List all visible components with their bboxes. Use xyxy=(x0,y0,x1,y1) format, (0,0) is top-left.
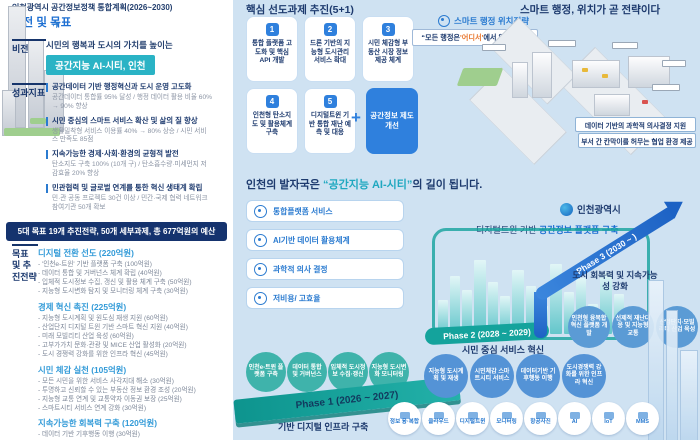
goal-item: 지능형 도시변화 탐지 및 모니터링 체계 구축 (30억원) xyxy=(38,287,196,296)
platform-icon xyxy=(254,205,267,218)
task-number-badge: 2 xyxy=(324,23,337,36)
vision-statement: 시민의 행복과 도시의 가치를 높이는 xyxy=(46,39,173,51)
marker-icon xyxy=(642,100,648,104)
tech-badge: 정보 융·복합 xyxy=(388,402,421,435)
kpi-title: 지속가능한 경제·사회·환경의 균형적 발전 xyxy=(46,150,212,159)
goal-item: '인천e-트윈' 기반 플랫폼 구축 (100억원) xyxy=(38,260,196,269)
benefit-pill: 저비용/ 고효율 xyxy=(246,287,404,309)
kpi-title: 민관협력 및 글로벌 연계를 통한 혁신 생태계 확립 xyxy=(46,184,212,193)
task-number-badge: 3 xyxy=(382,23,395,36)
bus-icon xyxy=(602,74,608,78)
goal-title: 디지털 전환 선도 (220억원) xyxy=(38,247,196,259)
benefit-pill: 과학적 의사 결정 xyxy=(246,258,404,280)
vision-goals-panel: ✈ 인천광역시 공간정보정책 통합계획(2026~2030) 비전 및 목표 비… xyxy=(0,0,233,440)
goal-item: 스마트시티 서비스 연계 강화 (30억원) xyxy=(38,404,196,413)
task-number-badge: 5 xyxy=(324,95,337,108)
aerial-photo-icon xyxy=(536,412,546,419)
digital-twin-icon xyxy=(468,412,478,419)
plus-icon: + xyxy=(351,108,361,128)
benefit-pill: 통합플랫폼 서비스 xyxy=(246,200,404,222)
tech-badge: IoT xyxy=(592,402,625,435)
goal-group: 디지털 전환 선도 (220억원) '인천e-트윈' 기반 플랫폼 구축 (10… xyxy=(38,247,196,297)
iot-icon xyxy=(604,412,614,419)
ai-icon xyxy=(570,412,580,419)
goal-item: 투명하고 신뢰할 수 있는 부동산 정보 환경 조성 (20억원) xyxy=(38,386,196,395)
callout-box: 데이터 기반의 과학적 의사결정 지원 xyxy=(575,117,696,132)
goal-item: 데이터 기반 기후행동 이행 (30억원) xyxy=(38,430,196,439)
person-icon xyxy=(438,15,450,27)
journey-title: 인천의 발자국은 “공간지능 AI-시티”의 길이 됩니다. xyxy=(246,176,576,192)
benefit-pill: AI기반 데이터 활용체계 xyxy=(246,229,404,251)
cloud-icon xyxy=(434,412,444,419)
skyscraper-illustration xyxy=(680,350,698,440)
airplane-icon: ✈ xyxy=(50,17,63,32)
bus-icon xyxy=(582,68,588,72)
cost-icon xyxy=(254,292,267,305)
task-number-badge: 4 xyxy=(266,95,279,108)
core-task-card: 5 디지털트윈 기반 통합 재난 예측 및 대응 xyxy=(304,88,356,154)
kpi-desc: 탄소지도 구축 100% (10개 구) / 탄소흡수량·미세먼지 저감효율 2… xyxy=(52,161,212,179)
goal-item: 지능형 도시계획 및 원도심 재생 지원 (60억원) xyxy=(38,314,196,323)
goal-title: 경제 혁신 촉진 (225억원) xyxy=(38,301,196,313)
phase2-circle: 도시경쟁력 강화를 위한 인프라 혁신 xyxy=(562,354,606,398)
callout-box: 부서 간 칸막이를 허무는 협업 환경 제공 xyxy=(578,133,696,148)
vision-label: 비전 xyxy=(12,39,46,56)
data-fusion-icon xyxy=(400,412,410,419)
goal-item: 입체적 도시정보 수집, 갱신 및 활용 체계 구축 (50억원) xyxy=(38,278,196,287)
vision-slogan: 공간지능 AI-시티, 인천 xyxy=(46,55,155,75)
phase2-circle: 시민체감 스마트시티 서비스 xyxy=(470,354,514,398)
phase2-circle: 데이터기반 기후행동 이행 xyxy=(516,354,560,398)
kpi-desc: 공간데이터 통합률 95% 달성 / 행정 데이터 활용 비율 60% → 90… xyxy=(52,94,212,112)
vision-block: 비전 시민의 행복과 도시의 가치를 높이는 공간지능 AI-시티, 인천 xyxy=(0,39,233,75)
mms-icon xyxy=(638,412,648,419)
kpi-block: 성과지표 공간데이터 기반 행정혁신과 도시 운영 고도화 공간데이터 통합률 … xyxy=(0,83,233,218)
goal-item: 지능형 교통 연계 및 교통약자 이동권 보장 (25억원) xyxy=(38,395,196,404)
goal-item: 데이터 통합 및 거버넌스 체계 확립 (40억원) xyxy=(38,269,196,278)
core-task-card: 3 시민 체감형 부동산 시장 정보 제공 체계 xyxy=(362,16,414,82)
tech-badge: MMS xyxy=(626,402,659,435)
phase3-circle: 인천형 융복합 혁신 플랫폼 개발 xyxy=(568,306,610,348)
smart-admin-header: 스마트 행정, 위치가 곧 전략이다 xyxy=(520,2,660,17)
task-number-badge: 1 xyxy=(266,23,279,36)
goal-item: 모든 시민을 위한 서비스 사각지대 해소 (30억원) xyxy=(38,377,196,386)
incheon-logo-icon xyxy=(560,203,573,216)
kpi-title: 시민 중심의 스마트 서비스 확산 및 삶의 질 향상 xyxy=(46,117,212,126)
strategy-block: 목표 및 추진전략 디지털 전환 선도 (220억원) '인천e-트윈' 기반 … xyxy=(0,244,233,440)
phase1-circle: 인천e-트윈 플랫폼 구축 xyxy=(246,352,286,392)
phase1-circle: 데이터 통합 및 거버넌스 xyxy=(287,352,327,392)
decision-icon xyxy=(254,263,267,276)
goal-item: 고부가가치 문화·관광 및 MICE 산업 활성화 (20억원) xyxy=(38,341,196,350)
tech-badge: 항공사진 xyxy=(524,402,557,435)
goal-group: 시민 체감 실천 (105억원) 모든 시민을 위한 서비스 사각지대 해소 (… xyxy=(38,364,196,414)
core-tasks-header: 핵심 선도과제 추진(5+1) xyxy=(246,2,354,17)
goal-group: 지속가능한 회복력 구축 (120억원) 데이터 기반 기후행동 이행 (30억… xyxy=(38,417,196,440)
core-task-card: 2 드론 기반의 지능형 도시관리 서비스 확대 xyxy=(304,16,356,82)
goal-group: 경제 혁신 촉진 (225억원) 지능형 도시계획 및 원도심 재생 지원 (6… xyxy=(38,301,196,360)
goal-item: 미래 모빌리티 산업 육성 (60억원) xyxy=(38,332,196,341)
special-task-card: 공간정보 제도 개선 xyxy=(366,88,418,154)
goal-item: 도시 경쟁력 강화를 위한 인프라 혁신 (45억원) xyxy=(38,350,196,359)
skyscraper-illustration xyxy=(666,310,678,440)
kpi-desc: 민·관 공동 프로젝트 30건 이상 / 민간·국제 협력 네트워크 참여기관 … xyxy=(52,195,212,213)
tech-badge: AI xyxy=(558,402,591,435)
goal-title: 시민 체감 실천 (105억원) xyxy=(38,364,196,376)
tech-badge: 모니터링 xyxy=(490,402,523,435)
goal-title: 지속가능한 회복력 구축 (120억원) xyxy=(38,417,196,429)
tech-badge: 디지털트윈 xyxy=(456,402,489,435)
phase1-title: 기반 디지털 인프라 구축 xyxy=(278,420,368,433)
goal-item: 산업단지 디지털 트윈 기반 스마트 혁신 지원 (40억원) xyxy=(38,323,196,332)
core-task-card: 4 인천형 탄소지도 및 활용체계 구축 xyxy=(246,88,298,154)
monitoring-icon xyxy=(502,412,512,419)
incheon-brand: 인천광역시 xyxy=(560,202,621,216)
kpi-title: 공간데이터 기반 행정혁신과 도시 운영 고도화 xyxy=(46,83,212,92)
strategy-label: 목표 및 추진전략 xyxy=(12,244,38,284)
phase2-circle: 지능형 도시계획 및 재생 xyxy=(424,354,468,398)
kpi-desc: 생활밀착형 서비스 이용률 40% → 80% 상승 / 시민 서비스 만족도 … xyxy=(52,128,212,146)
ai-data-icon xyxy=(254,234,267,247)
tech-badge: 클라우드 xyxy=(422,402,455,435)
core-task-card: 1 통합 플랫폼 고도화 및 핵심 API 개발 xyxy=(246,16,298,82)
budget-banner: 5대 목표 19개 추진전략, 50개 세부과제, 총 677억원의 예산 xyxy=(6,222,227,241)
phase3-title: 도시 회복력 및 지속가능성 강화 xyxy=(572,270,658,292)
infographic-poster: ✈ 인천광역시 공간정보정책 통합계획(2026~2030) 비전 및 목표 비… xyxy=(0,0,700,440)
kpi-label: 성과지표 xyxy=(12,83,46,100)
